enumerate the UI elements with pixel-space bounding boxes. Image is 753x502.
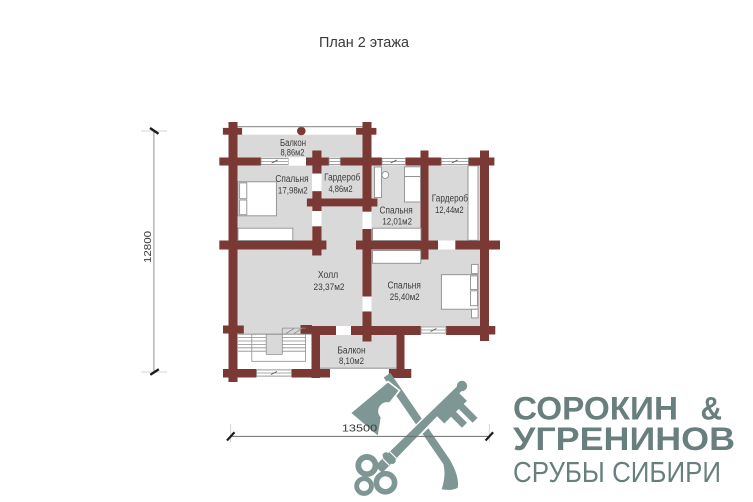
svg-text:17,98м2: 17,98м2 — [278, 186, 308, 197]
svg-text:Балкон: Балкон — [337, 346, 365, 357]
svg-text:12,44м2: 12,44м2 — [435, 205, 464, 216]
svg-text:25,40м2: 25,40м2 — [390, 292, 420, 303]
svg-text:Гардероб: Гардероб — [324, 172, 360, 184]
svg-text:8,10м2: 8,10м2 — [339, 356, 364, 367]
svg-text:Спальня: Спальня — [388, 281, 421, 292]
svg-text:12800: 12800 — [143, 231, 154, 263]
svg-text:СРУБЫ СИБИРИ: СРУБЫ СИБИРИ — [513, 457, 721, 489]
svg-text:УГРЕНИНОВ: УГРЕНИНОВ — [513, 421, 735, 457]
svg-text:12,01м2: 12,01м2 — [382, 216, 412, 227]
svg-text:Гардероб: Гардероб — [432, 193, 468, 205]
svg-text:4,86м2: 4,86м2 — [328, 184, 352, 195]
svg-text:23,37м2: 23,37м2 — [314, 282, 345, 293]
svg-text:Спальня: Спальня — [380, 205, 413, 216]
svg-text:Холл: Холл — [318, 270, 338, 281]
svg-text:8,86м2: 8,86м2 — [281, 148, 305, 158]
svg-text:Спальня: Спальня — [275, 174, 308, 185]
svg-text:План 2 этажа: План 2 этажа — [319, 35, 410, 51]
svg-text:13500: 13500 — [342, 423, 378, 434]
